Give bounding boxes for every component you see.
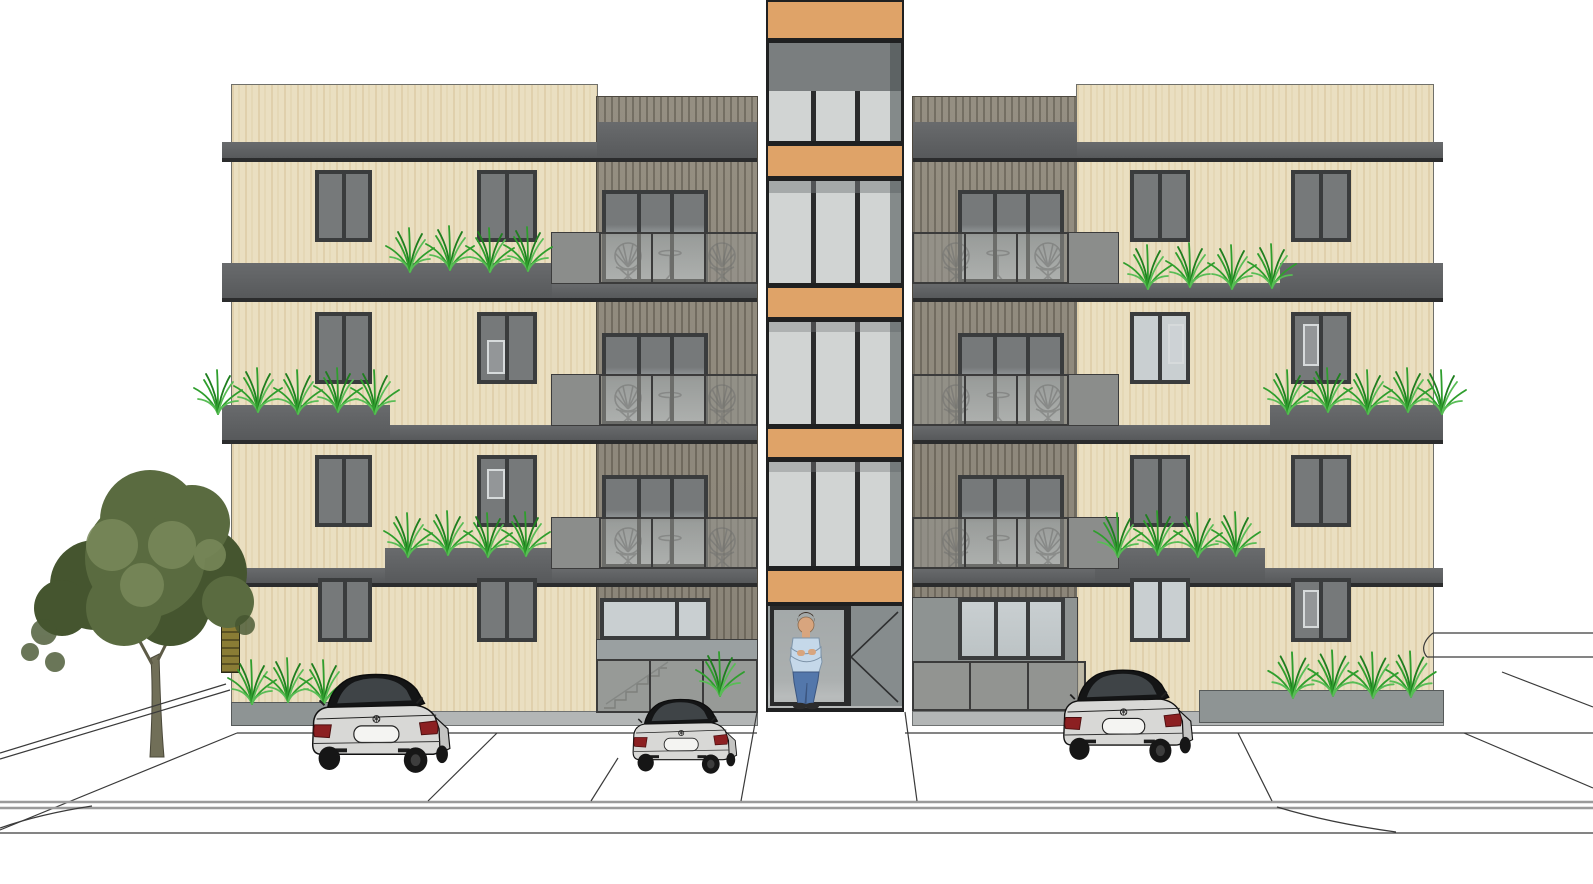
- window: [1291, 455, 1351, 527]
- tower-orange-band: [766, 144, 904, 178]
- window: [1291, 170, 1351, 242]
- window: [318, 578, 372, 642]
- left-wing-wall: [232, 85, 597, 712]
- planter-f3-right: [1270, 405, 1443, 440]
- balcony-doors: [958, 333, 1064, 425]
- window: [477, 578, 537, 642]
- balcony-doors: [958, 475, 1064, 568]
- elevation-canvas: [0, 0, 1593, 884]
- tower-orange-band: [766, 569, 904, 604]
- window: [1291, 312, 1351, 384]
- tower-glazing: [766, 40, 904, 144]
- window: [315, 312, 372, 384]
- balcony-end-wall: [1068, 233, 1118, 283]
- window: [1130, 170, 1190, 242]
- lobby-window: [600, 598, 710, 640]
- balcony-end-wall: [552, 518, 600, 568]
- window: [1130, 578, 1190, 642]
- balcony-end-wall: [552, 233, 600, 283]
- planter-f3-left: [222, 405, 390, 440]
- parapet-band-right-thick: [913, 122, 1077, 158]
- window: [315, 170, 372, 242]
- tree: [21, 470, 255, 757]
- balcony-doors: [958, 190, 1064, 283]
- window: [477, 170, 537, 242]
- parapet-band-left-thick: [597, 122, 757, 158]
- side-trellis: [222, 575, 239, 672]
- ground-planter-left: [232, 703, 355, 725]
- parapet-band-right: [1077, 142, 1443, 158]
- parapet-band-left: [222, 142, 597, 158]
- entry-doors-right-unit: [958, 598, 1065, 660]
- window: [1130, 455, 1190, 527]
- balcony-end-wall: [1068, 375, 1118, 425]
- window: [1291, 578, 1351, 642]
- window: [1130, 312, 1190, 384]
- balcony-doors: [602, 475, 708, 568]
- balcony-end-wall: [552, 375, 600, 425]
- tower-glazing: [766, 459, 904, 569]
- tower-glazing: [766, 178, 904, 286]
- tower-glazing: [766, 319, 904, 427]
- balcony-doors: [602, 333, 708, 425]
- entrance-side-panel: [848, 606, 902, 706]
- window: [315, 455, 372, 527]
- entrance-door[interactable]: [770, 606, 848, 706]
- planter-f4-right: [1280, 263, 1443, 298]
- tower-orange-band: [766, 427, 904, 459]
- balcony-end-wall: [1068, 518, 1118, 568]
- entrance-threshold: [766, 708, 904, 712]
- balcony-doors: [602, 190, 708, 283]
- lobby-interior-left: [597, 640, 757, 712]
- ground-planter-right: [1200, 691, 1443, 722]
- window: [477, 312, 537, 384]
- tower-orange-band: [766, 0, 904, 40]
- window: [477, 455, 537, 527]
- planter-f4-left: [222, 263, 552, 298]
- tower-orange-band: [766, 286, 904, 319]
